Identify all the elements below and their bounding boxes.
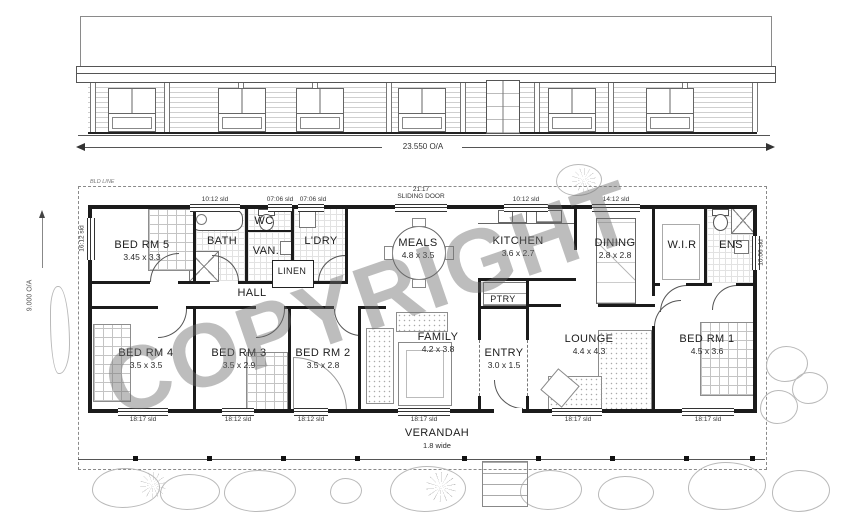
elevation-post <box>386 83 392 132</box>
window-code: 14:12 sld <box>586 196 646 203</box>
ens-shower <box>731 207 755 234</box>
building-line-label: BLD LINE <box>90 179 114 185</box>
wall <box>526 396 529 413</box>
elevation-window <box>646 88 694 132</box>
room-label-linen: LINEN <box>247 266 337 277</box>
wall <box>478 278 481 340</box>
window-upper-panes <box>297 89 343 114</box>
family-cabinet <box>396 312 448 332</box>
wall <box>245 230 293 232</box>
room-label-ldry: L'DRY <box>276 236 366 247</box>
window-marker <box>298 204 324 212</box>
room-label-bed2: BED RM 23.5 x 2.8 <box>278 348 368 371</box>
room-label-ptry: PTRY <box>458 294 548 305</box>
window-code: 18:12 sld <box>281 416 341 423</box>
shrub <box>160 474 220 510</box>
window-upper-panes <box>647 89 693 114</box>
shrub <box>50 286 70 374</box>
dim-arrow-right <box>766 143 775 151</box>
entry-door-gap <box>494 408 522 414</box>
elevation-window <box>218 88 266 132</box>
window-marker <box>398 408 450 416</box>
room-label-bed1: BED RM 14.5 x 3.6 <box>662 334 752 357</box>
tree <box>572 168 596 192</box>
window-marker <box>118 408 168 416</box>
shrub <box>520 470 582 510</box>
window-upper-panes <box>549 89 595 114</box>
dim-arrow-left <box>76 143 85 151</box>
window-code: 10:12 sld <box>185 196 245 203</box>
wall <box>652 326 655 413</box>
room-label-bed4: BED RM 43.5 x 3.5 <box>101 348 191 371</box>
ens-toilet <box>713 214 728 231</box>
elevation-window <box>108 88 156 132</box>
verandah-post <box>355 456 360 461</box>
wall <box>88 306 158 309</box>
verandah-post <box>207 456 212 461</box>
window-lower-pane <box>650 117 690 129</box>
verandah-edge-line <box>78 459 765 460</box>
bathtub-tap <box>196 214 207 225</box>
elevation-post <box>608 83 614 132</box>
window-marker <box>682 408 734 416</box>
window-code: 18:12 sld <box>208 416 268 423</box>
fascia-band <box>76 66 776 83</box>
window-marker <box>268 204 292 212</box>
shrub <box>772 470 830 512</box>
wall <box>598 304 655 307</box>
verandah-post <box>610 456 615 461</box>
window-marker <box>552 408 602 416</box>
window-lower-pane <box>112 117 152 129</box>
elevation-window <box>296 88 344 132</box>
window-marker <box>190 204 240 212</box>
window-code: 16:12 sld <box>79 209 86 269</box>
verandah-post <box>536 456 541 461</box>
window-upper-panes <box>109 89 155 114</box>
meals-chair <box>412 218 426 227</box>
window-marker <box>87 218 95 260</box>
window-lower-pane <box>300 117 340 129</box>
wir-shelving <box>662 224 700 280</box>
window-marker <box>294 408 328 416</box>
elevation-post <box>534 83 540 132</box>
shrub <box>760 390 798 424</box>
room-label-bed5: BED RM 53.45 x 3.3 <box>97 240 187 263</box>
shrub <box>224 470 296 512</box>
tree <box>426 472 456 502</box>
elevation-post <box>752 83 758 132</box>
depth-dim-line <box>42 218 43 268</box>
wall <box>186 306 256 309</box>
family-rug-inner <box>406 350 444 398</box>
window-code: 10:06 sld <box>758 223 765 283</box>
wall <box>88 281 150 284</box>
window-lower-pane <box>402 117 442 129</box>
room-label-meals: MEALS4.8 x 3.5 <box>373 238 463 261</box>
wall <box>178 281 196 284</box>
entry-steps <box>482 461 528 507</box>
verandah-post <box>133 456 138 461</box>
wall <box>284 306 334 309</box>
room-label-van: VAN. <box>221 246 311 257</box>
window-code: 18:17 sld <box>113 416 173 423</box>
plan-overall-depth: 9.000 O/A <box>27 266 34 326</box>
elevation-post <box>90 83 96 132</box>
dining-table <box>596 218 636 304</box>
front-elevation: 23.550 O/A <box>0 0 842 160</box>
sliding-door-code: 21:17 <box>391 186 451 193</box>
depth-arrow-up <box>39 210 45 218</box>
window-lower-pane <box>552 117 592 129</box>
wall <box>686 283 712 286</box>
window-marker <box>592 204 640 212</box>
wall <box>652 283 655 296</box>
room-label-entry: ENTRY3.0 x 1.5 <box>459 348 549 371</box>
family-shelves <box>366 328 394 404</box>
verandah-post <box>281 456 286 461</box>
elevation-post <box>460 83 466 132</box>
room-label-hall: HALL <box>207 288 297 299</box>
roof-outline <box>80 16 772 68</box>
meals-chair <box>412 279 426 288</box>
shrub <box>688 462 766 510</box>
verandah-post <box>462 456 467 461</box>
window-marker <box>504 204 548 212</box>
verandah-post <box>750 456 755 461</box>
elevation-overall-dimension: 23.550 O/A <box>393 142 453 151</box>
wall <box>736 283 757 286</box>
elevation-dim-line <box>82 147 382 148</box>
floor-plan-sheet: 23.550 O/A BLD LINE 9.000 O/A COPYRIGHT <box>0 0 842 518</box>
sliding-door-label: SLIDING DOOR <box>391 193 451 200</box>
window-marker <box>222 408 254 416</box>
room-label-wc: WC <box>219 216 309 227</box>
room-label-lounge: LOUNGE4.4 x 4.3 <box>544 334 634 357</box>
shrub <box>330 478 362 504</box>
wall <box>360 306 386 309</box>
window-code: 18:17 sld <box>548 416 608 423</box>
shrub <box>598 476 654 510</box>
wall <box>478 306 529 309</box>
window-code: 18:17 sld <box>394 416 454 423</box>
verandah-post <box>684 456 689 461</box>
window-code: 18:17 sld <box>678 416 738 423</box>
window-lower-pane <box>222 117 262 129</box>
verandah-label: VERANDAH1.8 wide <box>392 428 482 451</box>
elevation-dim-line <box>462 147 768 148</box>
room-label-kitchen: KITCHEN3.6 x 2.7 <box>473 236 563 259</box>
wall <box>526 278 529 340</box>
wall <box>196 281 210 284</box>
room-label-bed3: BED RM 33.5 x 2.9 <box>194 348 284 371</box>
window-code: 07:06 sld <box>283 196 343 203</box>
sliding-door-marker <box>395 204 447 212</box>
elevation-window <box>548 88 596 132</box>
ground-line <box>78 135 770 136</box>
shrub <box>792 372 828 404</box>
elevation-entry-door <box>486 80 520 134</box>
wall <box>478 396 481 413</box>
elevation-window <box>398 88 446 132</box>
window-upper-panes <box>219 89 265 114</box>
window-code: 10:12 sld <box>496 196 556 203</box>
window-upper-panes <box>399 89 445 114</box>
elevation-post <box>164 83 170 132</box>
